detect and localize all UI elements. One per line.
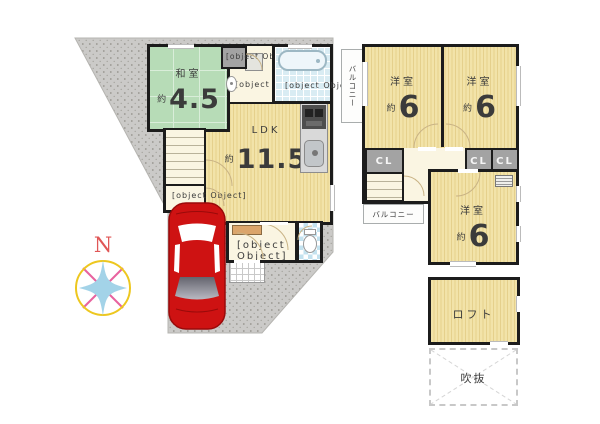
monoire-label: [object Object] <box>172 191 247 200</box>
window-ldk-right <box>330 185 335 211</box>
compass-north-label: N <box>94 233 112 257</box>
stove-icon <box>302 105 326 129</box>
bedroom2-label: 洋室 <box>467 73 493 88</box>
bathtub-icon <box>278 50 327 71</box>
bedroom3-size: 6 <box>469 219 490 254</box>
window-bedroom3-right-b <box>516 226 522 242</box>
bedroom1-size: 6 <box>399 90 420 125</box>
room-toilet <box>296 221 323 263</box>
genkan-label: [object Object] <box>237 240 295 262</box>
bedroom1-approx: 約 <box>387 104 396 114</box>
washitsu-approx: 約 <box>157 95 166 105</box>
bedroom3-approx: 約 <box>457 233 466 243</box>
window-bedroom3-right-a <box>516 186 522 202</box>
void-label: 吹抜 <box>431 370 516 386</box>
void-fukinuke: 吹抜 <box>429 348 518 406</box>
balcony-left-label: バルコニー <box>347 50 358 122</box>
room-loft: ロフト <box>428 277 520 345</box>
door-gap-bedroom1 <box>418 147 436 151</box>
ldk-label: LDK <box>252 125 281 136</box>
cl-left-label: CL <box>367 150 402 172</box>
closet-oshiire: [object Object] <box>221 46 247 69</box>
washitsu-size: 4.5 <box>169 84 220 115</box>
room-bedroom3: 洋室 約6 <box>428 169 519 265</box>
compass-icon: N <box>70 228 136 324</box>
stairs-1f <box>163 128 206 186</box>
toilet-icon <box>303 235 317 253</box>
balcony-left: バルコニー <box>341 49 364 123</box>
bedroom2-size: 6 <box>475 90 496 125</box>
floor-plan: LDK 約11.5 和室 約4.5 [object Object] <box>0 0 600 424</box>
kitchen-counter <box>300 103 328 173</box>
bedrooms-1-2-block: 洋室 約6 洋室 約6 <box>362 44 519 151</box>
kitchen-sink-icon <box>304 140 324 167</box>
bedroom1-label: 洋室 <box>390 73 416 88</box>
balcony-bottom: バルコニー <box>363 204 424 224</box>
bedroom3-label: 洋室 <box>460 202 486 217</box>
shoe-cabinet <box>232 225 262 235</box>
balcony-bottom-label: バルコニー <box>364 209 423 220</box>
window-washitsu-top <box>168 44 194 49</box>
window-bath-top <box>288 44 312 49</box>
window-bedroom3-bottom <box>450 261 476 267</box>
loft-ladder-icon <box>495 175 513 187</box>
ldk-approx: 約 <box>225 155 234 165</box>
bedroom2-approx: 約 <box>463 104 472 114</box>
window-bedroom2-right <box>516 66 522 106</box>
washitsu-label: 和室 <box>176 65 202 80</box>
room-washitsu: 和室 約4.5 <box>147 44 230 132</box>
door-gap-bedroom3 <box>458 169 478 173</box>
window-loft-right <box>516 296 521 312</box>
stairs-2f <box>365 172 404 202</box>
window-loft-bottom <box>490 341 508 346</box>
sink-icon <box>226 76 237 92</box>
window-bedroom1-left <box>362 62 368 106</box>
room-genkan: [object Object] <box>226 221 298 263</box>
door-gap-bedroom2 <box>445 147 463 151</box>
door-gap-entrance <box>234 260 260 263</box>
room-yokushitsu: [object Object] <box>272 44 333 104</box>
loft-label: ロフト <box>431 306 516 322</box>
ldk-size: 11.5 <box>237 144 308 175</box>
closet-cl-left: CL <box>365 148 404 174</box>
entrance-porch <box>229 261 265 283</box>
door-gap-ldk-genkan <box>260 222 288 225</box>
car-icon <box>166 201 228 331</box>
